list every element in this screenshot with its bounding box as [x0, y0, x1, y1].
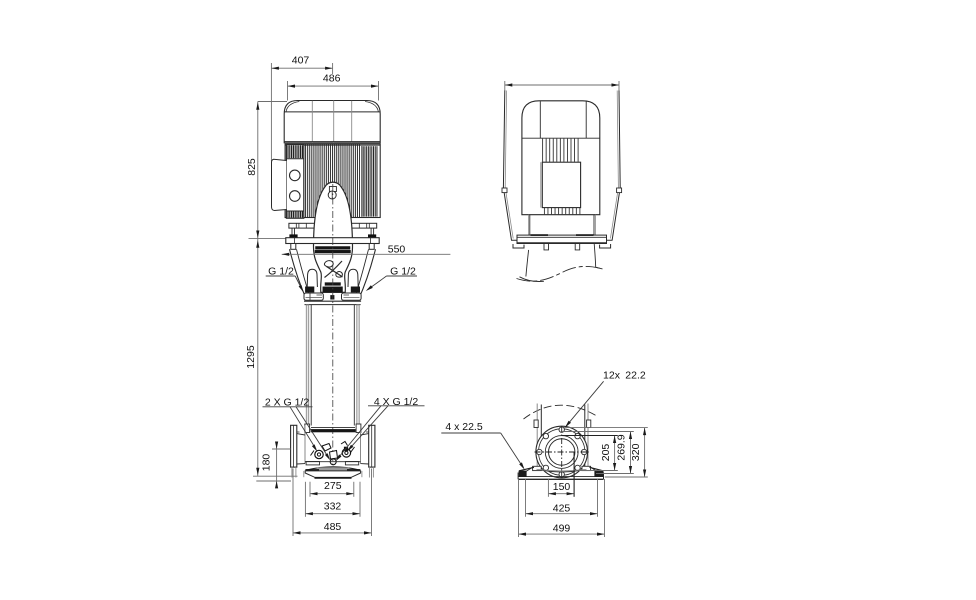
svg-text:499: 499 — [553, 522, 571, 534]
svg-text:22.2: 22.2 — [625, 370, 646, 382]
svg-text:269.9: 269.9 — [616, 434, 628, 460]
svg-text:180: 180 — [261, 454, 273, 472]
svg-text:150: 150 — [553, 481, 571, 493]
svg-text:205: 205 — [600, 444, 612, 462]
svg-text:275: 275 — [324, 480, 342, 492]
svg-text:550: 550 — [388, 243, 406, 255]
svg-text:320: 320 — [630, 443, 642, 461]
svg-text:485: 485 — [324, 521, 342, 533]
svg-text:425: 425 — [553, 503, 571, 515]
svg-text:332: 332 — [324, 501, 342, 513]
svg-text:407: 407 — [292, 55, 310, 67]
svg-text:12x: 12x — [603, 370, 621, 382]
svg-text:486: 486 — [323, 73, 341, 85]
svg-text:1295: 1295 — [245, 345, 257, 369]
svg-text:825: 825 — [246, 158, 258, 176]
svg-text:4 x 22.5: 4 x 22.5 — [445, 421, 483, 433]
